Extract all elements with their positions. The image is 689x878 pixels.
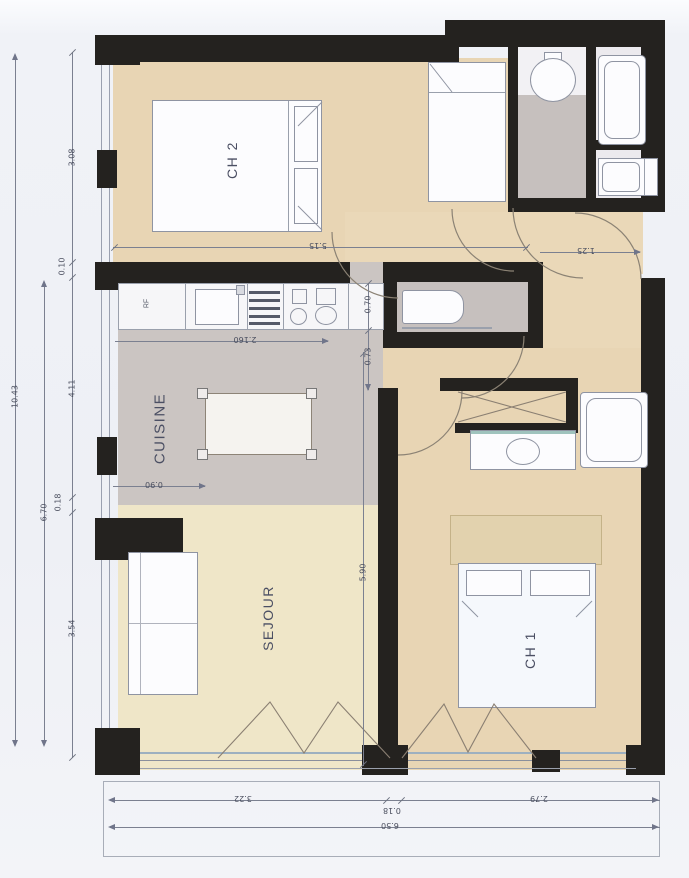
dim-island: 0.90 <box>140 480 168 489</box>
bed-fold-ch2-bottom <box>298 206 322 230</box>
bed-fold-ch2-top <box>298 102 322 126</box>
door-arc-ch1 <box>398 391 462 455</box>
dim-inner-height: 6.70 <box>40 501 49 525</box>
dim-ch2-width: 5.15 <box>303 241 333 250</box>
floor-plan: RF <box>0 0 689 878</box>
door-arc-cuisine <box>332 232 398 298</box>
room-label-ch1: CH 1 <box>522 620 538 680</box>
room-label-ch2: CH 2 <box>224 130 240 190</box>
bed-fold-ch1-right <box>576 601 592 617</box>
door-arc-midbath <box>462 336 524 398</box>
dim-wall-width: 0.18 <box>378 806 406 815</box>
room-label-sejour: SEJOUR <box>260 585 276 651</box>
dim-ch1-width: 2.79 <box>524 794 554 803</box>
dim-gap-mid: 0.18 <box>54 491 63 515</box>
door-arc-ch2 <box>452 209 514 271</box>
dim-gap-top: 0.10 <box>58 255 67 279</box>
dim-line-ch1-height <box>363 352 364 766</box>
dim-counter-width: 2.160 <box>228 335 262 344</box>
dim-sejour-height: 3.54 <box>68 617 77 641</box>
door-arc-wc <box>513 208 583 278</box>
dim-line-counter <box>115 341 328 342</box>
dim-ch1-height: 5.90 <box>359 561 368 585</box>
dim-outer-height: 10.43 <box>11 384 20 410</box>
bed-fold-single <box>430 64 452 92</box>
bed-fold-ch1-left <box>462 601 478 617</box>
curtain-zigzag-sejour <box>218 702 390 758</box>
dim-bottom-box <box>103 781 660 857</box>
room-label-cuisine: CUISINE <box>152 392 169 466</box>
dim-entry: 1.25 <box>572 246 600 255</box>
curtain-zigzag-ch1 <box>402 704 536 758</box>
dim-pass-width: 0.73 <box>364 345 373 369</box>
dim-total-width: 6.50 <box>375 821 405 830</box>
dim-ch2-height: 3.08 <box>68 146 77 170</box>
plan-linework <box>0 0 689 878</box>
dim-counter-depth: 0.70 <box>364 293 373 317</box>
dim-sejour-width: 3.22 <box>228 794 258 803</box>
dim-cuisine-height: 4.11 <box>68 377 77 401</box>
